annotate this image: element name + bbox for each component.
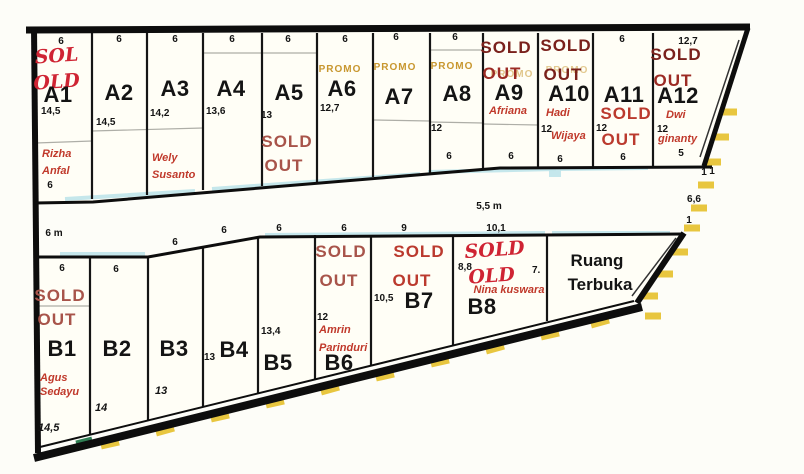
b1-owner-line2: Sedayu [40, 386, 79, 398]
b6-status-sold: SOLD [315, 242, 366, 261]
a12-label: A12 [657, 83, 699, 108]
b7-status-sold: SOLD [393, 242, 444, 261]
a8-depth-label: 12 [431, 123, 443, 134]
a7-label: A7 [384, 84, 413, 109]
a9-bottom-label: 6 [508, 151, 514, 162]
b7-label: B7 [404, 288, 433, 313]
b1-depth-label: 14,5 [38, 422, 60, 434]
b5-depth-label: 13,4 [261, 326, 281, 337]
road-width-left: 6 m [45, 228, 62, 239]
b4-label: B4 [219, 337, 248, 362]
a3-owner-line2: Susanto [152, 169, 196, 181]
b8-label: B8 [467, 294, 496, 319]
a12-bottom-label: 5 [678, 148, 684, 159]
b1-status-sold: SOLD [34, 286, 85, 305]
a6-frontage-label: 6 [342, 34, 348, 45]
b6-frontage-label: 6 [341, 223, 347, 234]
a8-label: A8 [442, 81, 471, 106]
a10-bottom-label: 6 [557, 154, 563, 165]
a10-owner-line2: Wijaya [551, 130, 586, 142]
b6-label: B6 [324, 350, 353, 375]
a1-depth-label: 14,5 [41, 106, 61, 117]
a12-status-sold: SOLD [650, 45, 701, 64]
open-space-line2: Terbuka [568, 275, 633, 294]
a6-label: A6 [327, 76, 356, 101]
a8-promo-label: PROMO [431, 61, 474, 72]
b8-side-label: 7. [532, 265, 541, 276]
cyan-mark [549, 168, 561, 177]
b8-frontage-label: 10,1 [486, 223, 506, 234]
b1-owner-line1: Agus [39, 372, 68, 384]
b1-frontage-label: 6 [59, 263, 65, 274]
a12-corner-label: 1 [701, 167, 707, 178]
a2-depth-label: 14,5 [96, 117, 116, 128]
a12-owner-line2: ginanty [657, 133, 698, 145]
a4-frontage-label: 6 [229, 34, 235, 45]
b3-frontage-label: 6 [172, 237, 178, 248]
a2-frontage-label: 6 [116, 34, 122, 45]
right-edge-top: 1 [709, 166, 715, 177]
a12-owner-line1: Dwi [666, 109, 687, 121]
b2-frontage-label: 6 [113, 264, 119, 275]
b5-label: B5 [263, 350, 292, 375]
a9-label: A9 [494, 80, 523, 105]
a1-bottom-label: 6 [47, 180, 53, 191]
a3-depth-label: 14,2 [150, 108, 170, 119]
a10-owner-line1: Hadi [546, 107, 571, 119]
right-edge-mid: 6,6 [687, 194, 701, 205]
a3-owner-line1: Wely [152, 152, 178, 164]
open-space-line1: Ruang [571, 251, 624, 270]
a11-frontage-label: 6 [619, 34, 625, 45]
site-plan-image: 6 SOL OLD A1 14,5 Rizha Anfal 6 6 A2 14,… [0, 0, 804, 474]
site-plan-svg: 6 SOL OLD A1 14,5 Rizha Anfal 6 6 A2 14,… [0, 0, 804, 474]
b4-frontage-label: 6 [221, 225, 227, 236]
b6-status-out: OUT [320, 271, 359, 290]
boundary-top [26, 27, 750, 30]
b2-label: B2 [102, 336, 131, 361]
road-width-right: 5,5 m [476, 201, 502, 212]
a2-label: A2 [104, 80, 133, 105]
b3-depth-label: 13 [155, 385, 167, 397]
a10-status-sold: SOLD [540, 36, 591, 55]
b8-status-sold: SOLD [464, 237, 526, 263]
a5-label: A5 [274, 80, 303, 105]
b6-owner-line1: Amrin [318, 324, 351, 336]
b8-depth-label: 8,8 [458, 262, 472, 273]
a3-label: A3 [160, 76, 189, 101]
right-edge-bottom: 1 [686, 215, 692, 226]
a7-promo-label: PROMO [374, 62, 417, 73]
b4-width-label: 13 [204, 352, 216, 363]
a5-depth-label: 13 [261, 110, 273, 121]
a1-sold-line1: SOL [34, 44, 79, 69]
b3-label: B3 [159, 336, 188, 361]
a8-frontage-label: 6 [452, 32, 458, 43]
b7-frontage-label: 9 [401, 223, 407, 234]
a7-frontage-label: 6 [393, 32, 399, 43]
a9-owner-line1: Afriana [488, 105, 527, 117]
a11-depth-label: 12 [596, 123, 608, 134]
a4-depth-label: 13,6 [206, 106, 226, 117]
a10-label: A10 [548, 81, 590, 106]
a1-label: A1 [43, 82, 72, 107]
a9-status-sold: SOLD [480, 38, 531, 57]
a11-status-out: OUT [602, 130, 641, 149]
b7-depth-label: 10,5 [374, 293, 394, 304]
a6-depth-label: 12,7 [320, 103, 340, 114]
b2-depth-label: 14 [95, 402, 107, 414]
a1-owner-line1: Rizha [42, 148, 71, 160]
a3-frontage-label: 6 [172, 34, 178, 45]
b1-label: B1 [47, 336, 76, 361]
b5-frontage-label: 6 [276, 223, 282, 234]
a8-bottom-label: 6 [446, 151, 452, 162]
a5-status-out: OUT [265, 156, 304, 175]
a6-promo-label: PROMO [319, 64, 362, 75]
a5-frontage-label: 6 [285, 34, 291, 45]
b1-status-out: OUT [38, 310, 77, 329]
b6-depth-label: 12 [317, 312, 329, 323]
a11-bottom-label: 6 [620, 152, 626, 163]
a5-status-sold: SOLD [261, 132, 312, 151]
a1-owner-line2: Anfal [41, 165, 70, 177]
a4-label: A4 [216, 76, 245, 101]
a11-status-sold: SOLD [600, 104, 651, 123]
